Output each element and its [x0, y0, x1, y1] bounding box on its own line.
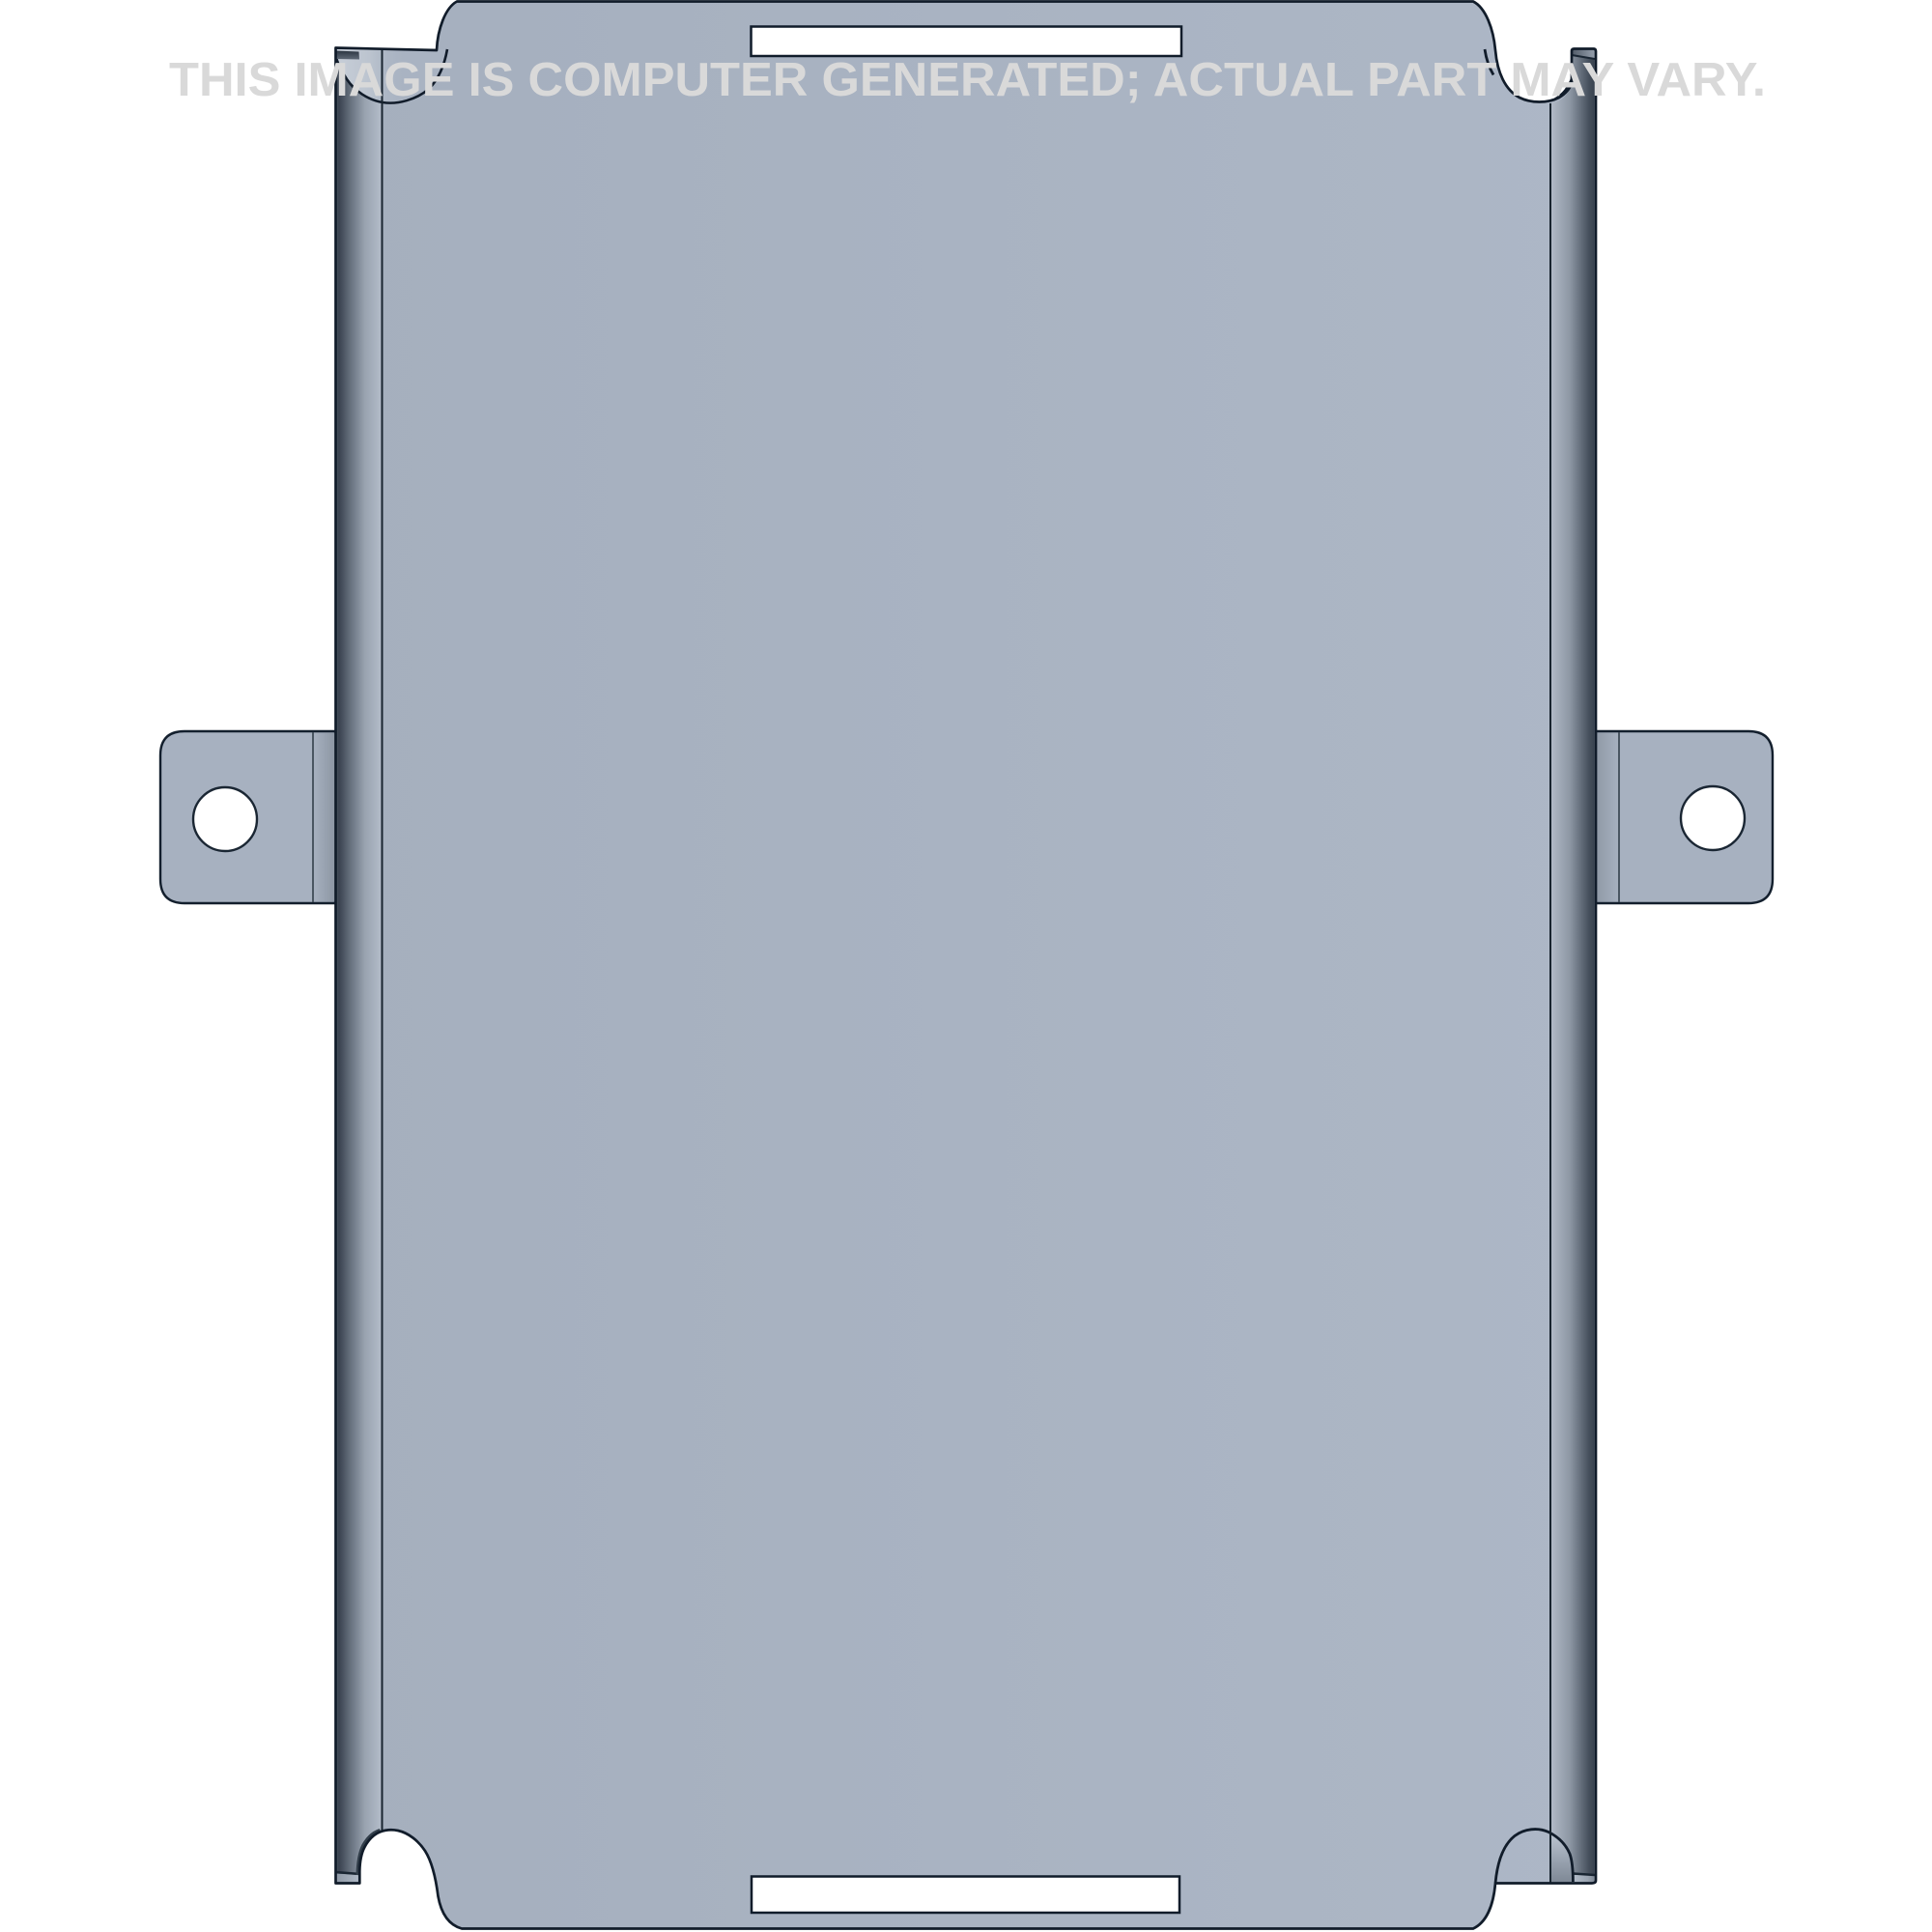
svg-text:THIS IMAGE IS COMPUTER GENERAT: THIS IMAGE IS COMPUTER GENERATED; ACTUAL… [169, 54, 1766, 106]
